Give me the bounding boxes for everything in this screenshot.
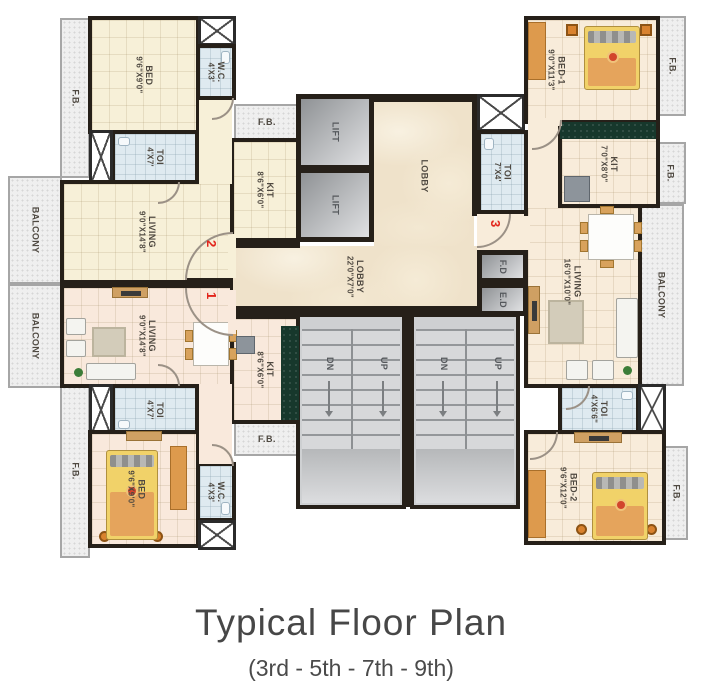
plan-subtitle: (3rd - 5th - 7th - 9th) [0,655,702,682]
stair-dn-label: DN [438,357,449,371]
floor-plan-canvas: F.B. F.B. BALCONY BALCONY F.B. F.B. BED9… [0,0,702,696]
fb-label: F.B. [671,484,682,501]
stair-up-label: UP [378,357,389,370]
stair-landing [302,449,400,503]
balcony-label: BALCONY [30,313,41,360]
lobby-label: LOBBY [419,160,430,193]
room-label: W.C.4'X3' [206,482,226,503]
chair-furniture [185,348,193,360]
chair-furniture [185,330,193,342]
sofa-furniture [86,363,136,380]
room-label: W.C.4'X3' [206,62,226,83]
flower-bed-right-top: F.B. [658,16,686,116]
unit-number-1: 1 [204,292,219,299]
rug-furniture [92,327,126,357]
tv-unit-furniture [112,287,148,298]
duct-shaft [89,384,113,436]
tv-furniture [589,436,609,441]
chair-furniture [580,240,588,252]
electrical-duct: E.D [477,283,528,316]
fb-label: F.B. [258,117,276,127]
sink-fixture [484,138,494,150]
room-label: TOI4'X7' [145,400,165,420]
floor-plan: F.B. F.B. BALCONY BALCONY F.B. F.B. BED9… [0,0,702,696]
stair-arrow [382,381,384,415]
chair-furniture [580,222,588,234]
room-label: BED-29'6"X12'0" [558,467,578,509]
flower-bed-left-top: F.B. [60,18,90,178]
duct-shaft [477,94,525,132]
room-label: TOI7'X4' [492,162,512,182]
tv-unit-furniture [574,432,622,443]
chair-furniture [600,206,614,214]
lobby-vertical: LOBBY [374,102,474,250]
room-label: KIT7'0"X8'0" [599,145,619,182]
staircase-left: DN UP [296,313,406,509]
fb-label: F.B. [70,89,81,106]
room-label: BED-19'0"X11'3" [546,49,566,91]
bed-pillows [596,477,644,489]
flower-bed-left-bottom: F.B. [60,384,90,558]
armchair-furniture [592,360,614,380]
room-label: BED9'6"X9'0" [134,56,154,93]
bed-decor [607,51,619,63]
room-label: TOI4'X7' [145,147,165,167]
kitchen-counter [560,122,656,139]
bed-post [640,24,652,36]
wc-flat1: W.C.4'X3' [196,462,236,522]
duct-shaft [198,16,236,46]
chair-furniture [634,222,642,234]
stair-up-label: UP [492,357,503,370]
kitchen-counter [281,326,299,420]
sink-fixture [621,391,633,400]
bed-post [566,24,578,36]
staircase-right: DN UP [410,313,520,509]
toilet-flat2: TOI4'X7' [111,130,199,184]
flower-bed-right-bottom: F.B. [664,446,688,540]
stair-arrow [496,381,498,415]
chair-furniture [600,260,614,268]
balcony-top-left: BALCONY [8,176,62,284]
armchair-furniture [566,360,588,380]
bedroom-flat2: BED9'6"X9'0" [88,16,200,134]
wc-flat2: W.C.4'X3' [196,44,236,100]
wall [230,240,300,248]
unit-number-3: 3 [488,220,503,227]
ed-label: E.D [497,292,508,308]
armchair-furniture [66,340,86,357]
stair-dn-label: DN [324,357,335,371]
lift-1: LIFT [296,94,374,170]
bed-post [576,524,587,535]
balcony-bottom-left: BALCONY [8,284,62,388]
flower-bed-top-center: F.B. [234,104,300,140]
toilet-fixture [221,502,230,515]
duct-shaft [89,130,113,184]
stair-arrow [328,381,330,415]
lobby-corridor: LOBBY22'0"X7'0" [233,246,477,308]
kitchen-flat2: KIT8'6"X6'0" [230,138,300,242]
stair-landing [416,449,514,503]
tv-furniture [532,301,537,321]
wall [374,94,478,102]
room-label: BED9'6"X9'0" [126,470,146,507]
wardrobe-furniture [170,446,187,510]
bed-pillows [110,455,154,467]
plant-furniture [623,366,632,375]
bed-furniture [592,472,648,540]
duct-shaft [638,384,666,434]
balcony-label: BALCONY [656,272,667,319]
toilet-flat1: TOI4'X7' [111,384,199,436]
lift-label: LIFT [330,122,341,142]
fd-label: F.D [497,259,508,273]
stair-arrow [442,381,444,415]
dining-table-furniture [588,214,634,260]
wardrobe-furniture [528,22,546,80]
flower-bed-bottom-center: F.B. [234,422,300,456]
lift-2: LIFT [296,168,374,242]
room-label: KIT8'6"X6'0" [255,351,275,388]
unit-number-2: 2 [204,240,219,247]
toilet-flat3-common: TOI7'X4' [477,130,528,214]
fb-label: F.B. [258,434,276,444]
door-opening [522,216,530,250]
balcony-right: BALCONY [638,204,684,386]
tv-furniture [121,291,141,296]
tv-unit-furniture [528,286,540,334]
armchair-furniture [66,318,86,335]
stair-divider [351,329,353,449]
fb-label: F.B. [70,462,81,479]
dresser-furniture [126,431,162,441]
chair-furniture [634,240,642,252]
stair-divider [465,329,467,449]
fb-label: F.B. [665,164,676,181]
bed-decor [615,499,627,511]
lift-label: LIFT [330,195,341,215]
room-label: LIVING16'0"X10'0" [562,259,582,306]
fridge-furniture [564,176,590,202]
balcony-label: BALCONY [30,207,41,254]
fire-duct: F.D [477,250,528,283]
plan-title: Typical Floor Plan [0,602,702,644]
sink-fixture [118,137,130,146]
fridge-furniture [236,336,255,354]
fb-label: F.B. [667,57,678,74]
bed-furniture [584,26,640,90]
sofa-furniture [616,298,638,358]
bed-pillows [588,31,636,43]
plant-furniture [74,368,83,377]
lobby-label: LOBBY22'0"X7'0" [345,256,365,298]
room-label: LIVING9'0"X14'8" [137,315,157,357]
sink-fixture [118,420,130,429]
room-label: TOI4'X6'6" [589,395,609,423]
rug-furniture [548,300,584,344]
room-label: KIT8'6"X6'0" [255,171,275,208]
duct-shaft [198,520,236,550]
room-label: LIVING9'0"X14'8" [137,211,157,253]
wardrobe-furniture [528,470,546,538]
